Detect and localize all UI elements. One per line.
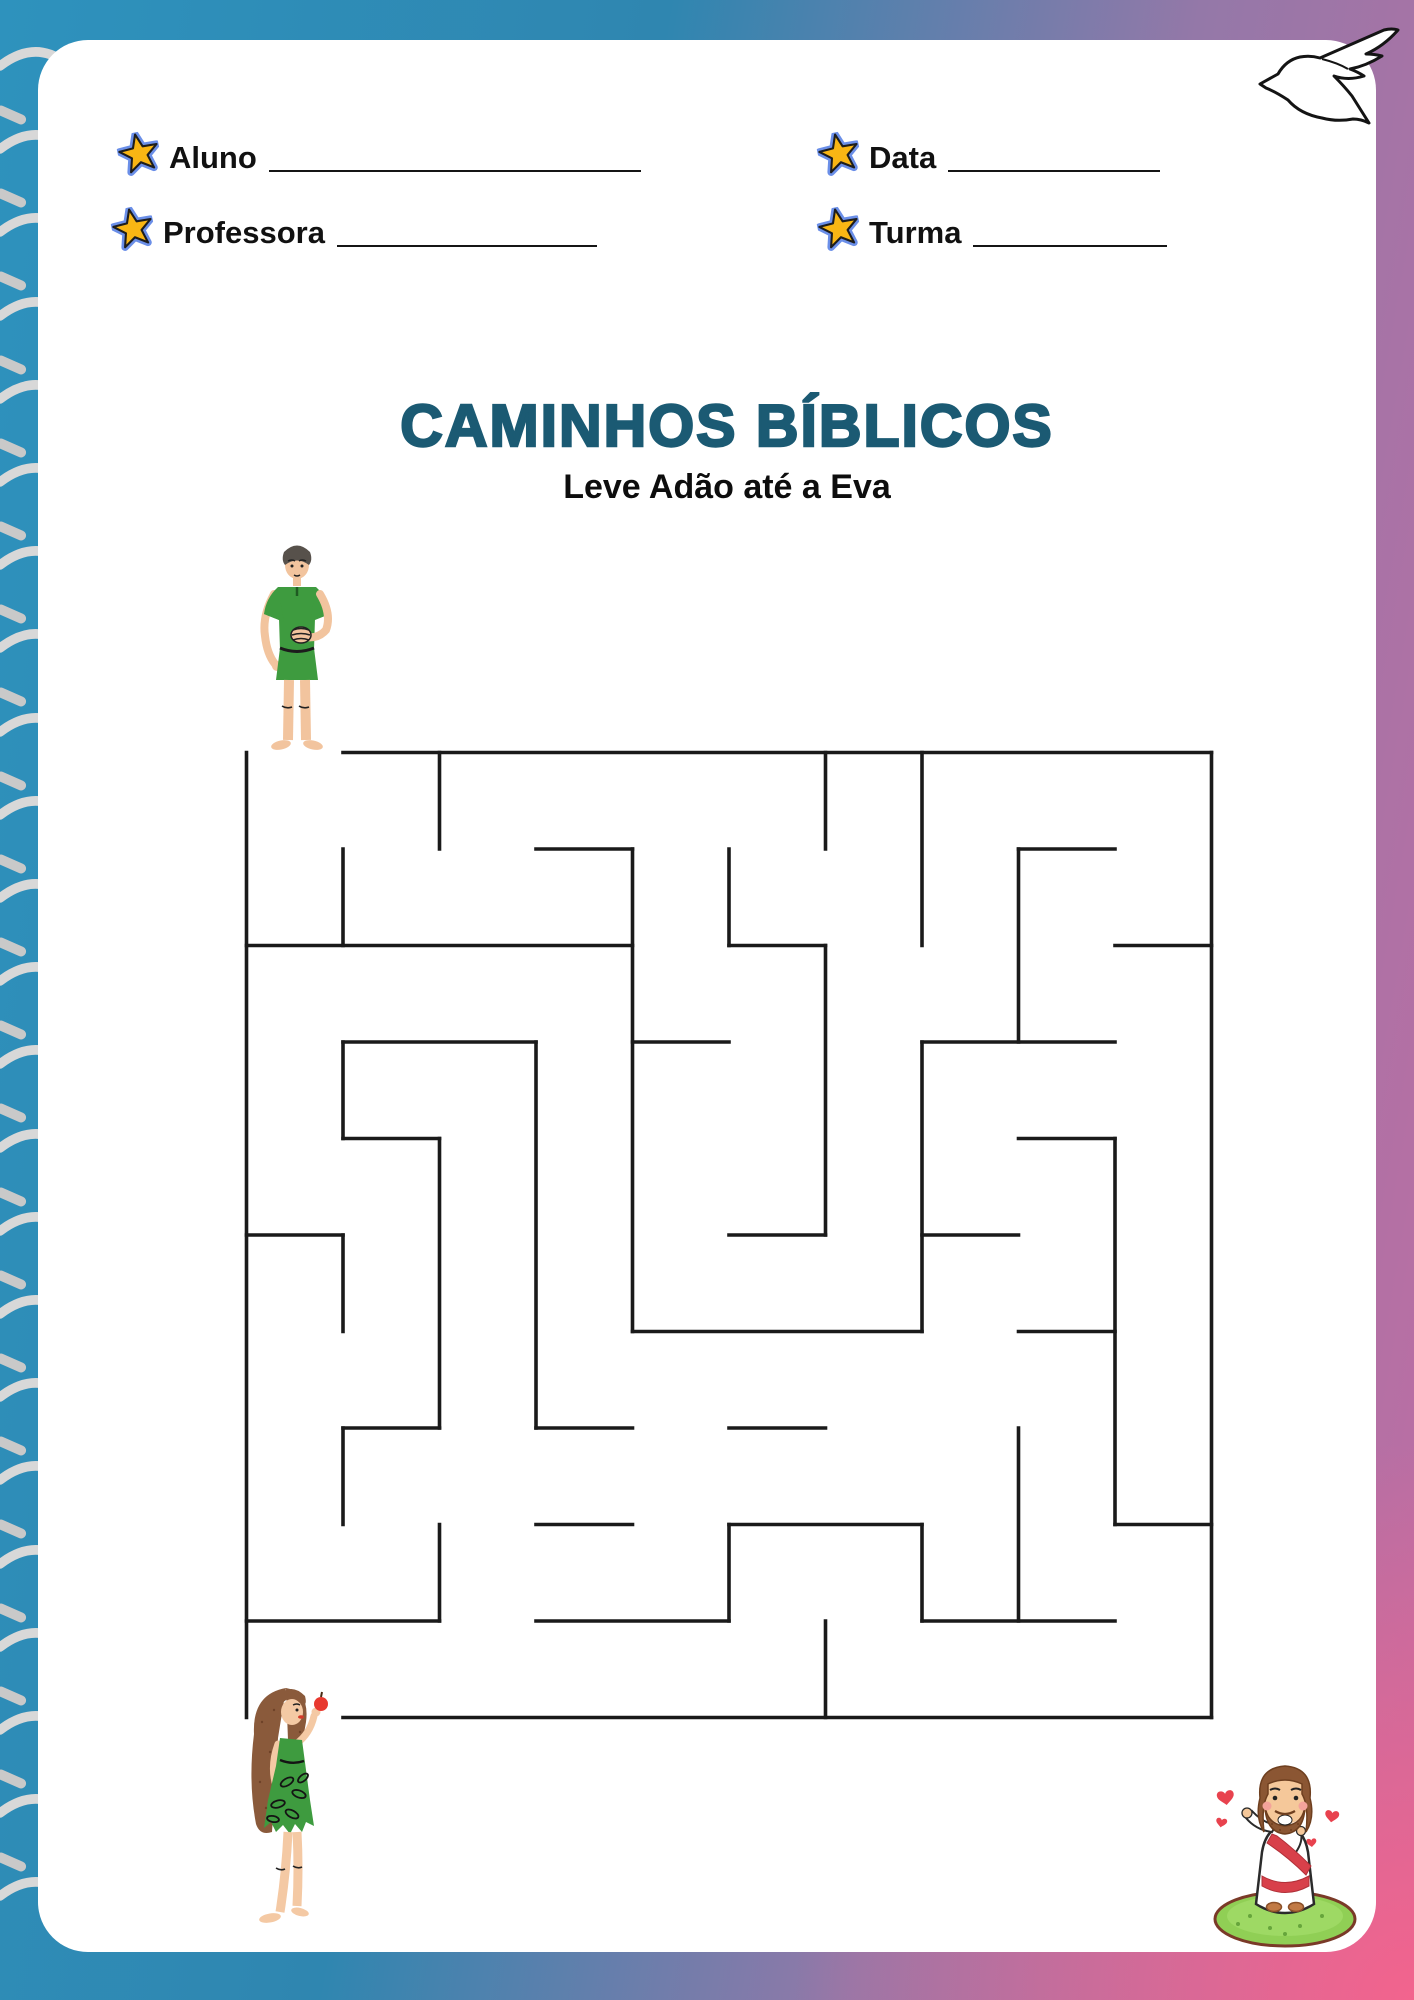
eve-character (240, 1682, 328, 1932)
page-title: CAMINHOS BÍBLICOS (58, 392, 1396, 460)
star-icon (814, 203, 864, 253)
field-turma: Turma (818, 207, 1167, 250)
field-label: Professora (163, 217, 325, 250)
field-aluno: Aluno (118, 132, 641, 175)
worksheet-page: Aluno Professora Data Turma CAMINHOS BÍB… (38, 40, 1376, 1952)
write-line (269, 164, 641, 172)
adam-character (252, 538, 342, 753)
star-icon (108, 203, 158, 253)
dove-icon (1252, 26, 1402, 141)
worksheet-screenshot: { "doc": {"kind": "printable-maze-worksh… (0, 0, 1414, 2000)
star-icon (814, 128, 864, 178)
jesus-character (1210, 1756, 1360, 1951)
write-line (337, 239, 597, 247)
write-line (973, 239, 1167, 247)
maze (244, 750, 1214, 1720)
field-label: Aluno (169, 142, 257, 175)
page-subtitle: Leve Adão até a Eva (58, 468, 1396, 507)
field-label: Turma (869, 217, 961, 250)
write-line (948, 164, 1160, 172)
field-data: Data (818, 132, 1160, 175)
field-professora: Professora (112, 207, 597, 250)
field-label: Data (869, 142, 936, 175)
star-icon (114, 128, 164, 178)
